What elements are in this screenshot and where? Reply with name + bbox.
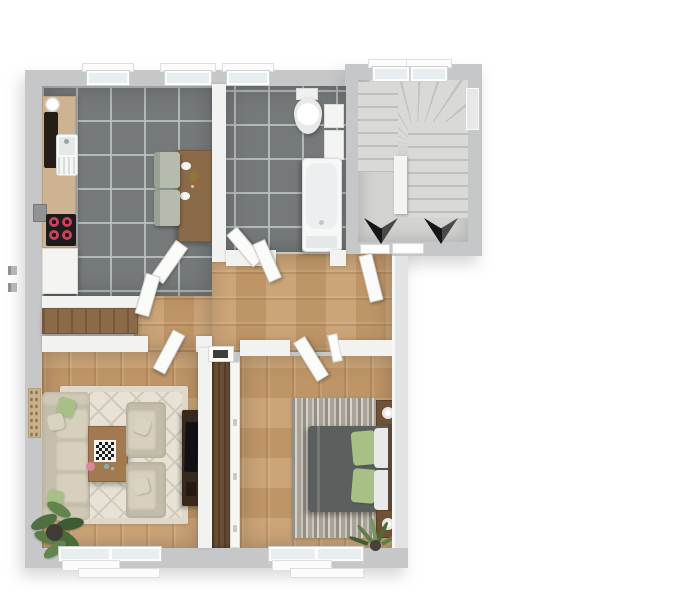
sofa-cushion: [56, 441, 88, 471]
tv: [184, 422, 199, 472]
stairwell-window-2: [410, 66, 448, 82]
sink-faucet: [64, 139, 69, 144]
bathtub-step: [306, 236, 337, 248]
washbasin-cabinet: [324, 104, 344, 128]
wall-mounted-box: [33, 204, 47, 222]
kitchen-south-wall: [42, 296, 150, 308]
water-heater: [45, 97, 60, 112]
door-hinge: [233, 473, 237, 480]
chessboard: [94, 440, 116, 462]
east-exterior-wall: [392, 256, 408, 548]
bathroom-wall: [330, 250, 346, 266]
stairwell-side-window: [466, 88, 479, 130]
table-food: [189, 172, 198, 181]
divider-wall: [212, 84, 226, 262]
pink-bowl: [86, 462, 95, 471]
stairs-right-flight: [408, 122, 468, 218]
cooktop-burner: [62, 230, 72, 240]
bathroom-window: [226, 70, 270, 86]
cooktop-burner: [49, 217, 59, 227]
window-pane: [375, 69, 407, 79]
stairwell-window-1: [372, 66, 410, 82]
cooktop-burner: [49, 230, 59, 240]
plant-pot: [370, 540, 381, 551]
dining-chair: [154, 190, 180, 226]
wardrobe-vent: [213, 350, 228, 358]
window-pane: [318, 549, 362, 559]
wall-picture: [28, 388, 41, 438]
duvet-fold: [317, 426, 320, 512]
wall-fitting: [8, 283, 17, 292]
kitchen-window-1: [86, 70, 130, 86]
kitchen-base-cabinet: [42, 248, 78, 294]
window-pane: [61, 549, 109, 559]
parked-door-leaf: [392, 243, 424, 254]
sofa-pillow: [47, 413, 66, 432]
entry-threshold: [360, 244, 390, 254]
bathtub-drain: [319, 220, 324, 225]
window-pane: [413, 69, 445, 79]
living-room-north-wall: [42, 336, 148, 352]
dining-chair: [154, 152, 180, 188]
bedroom-north-wall: [240, 340, 290, 356]
stairs-center-divider: [394, 156, 407, 214]
window-pane: [89, 73, 127, 83]
window-sill: [78, 568, 160, 578]
door-hinge: [233, 525, 237, 532]
wardrobe-doors: [230, 362, 240, 548]
window-pane: [167, 73, 209, 83]
window-sill: [290, 568, 364, 578]
dinner-plate: [181, 162, 191, 170]
door-hinge: [233, 419, 237, 426]
plant-pot: [46, 524, 63, 541]
console-item: [186, 482, 196, 496]
wardrobe: [212, 360, 230, 548]
window-pane: [112, 549, 160, 559]
window-pane: [229, 73, 267, 83]
sink-drainboard: [58, 157, 76, 174]
floorplan-canvas: [0, 0, 682, 600]
living-room-east-wall: [198, 348, 212, 548]
dinner-plate: [180, 192, 190, 200]
kitchen-window-2: [164, 70, 212, 86]
sideboard: [42, 308, 138, 334]
window-pane: [271, 549, 315, 559]
wall-fitting: [8, 266, 17, 275]
bedroom-north-wall: [334, 340, 392, 356]
table-glasses: [104, 464, 109, 469]
washbasin-cabinet-lower: [324, 130, 344, 160]
stairs-left-flight: [358, 82, 398, 172]
cooktop-burner: [62, 217, 72, 227]
